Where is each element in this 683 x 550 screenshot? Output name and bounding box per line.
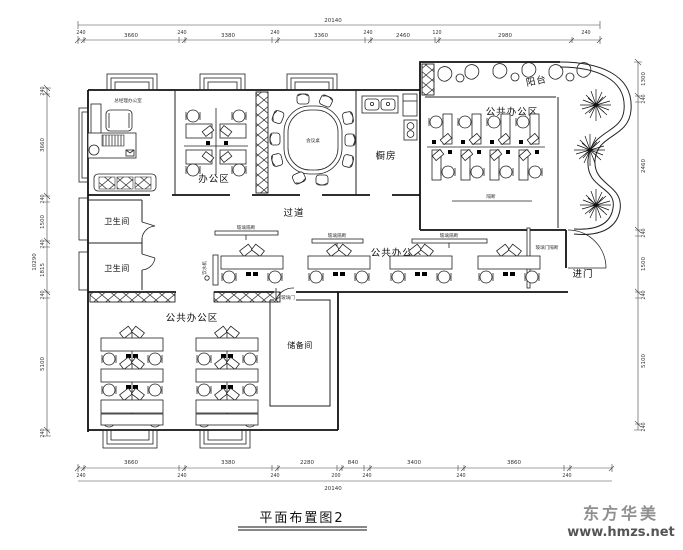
room-label-public-office-bottom: 公共办公区 bbox=[166, 312, 219, 324]
dim: 240 bbox=[270, 473, 279, 479]
dim: 240 bbox=[177, 473, 186, 479]
dim: 120 bbox=[432, 30, 441, 36]
room-label-balcony: 阳台 bbox=[525, 73, 548, 89]
stove bbox=[404, 120, 417, 140]
dim: 3660 bbox=[124, 460, 138, 466]
room-note-manager: 总经理办公室 bbox=[114, 97, 142, 104]
dim: 240 bbox=[641, 94, 647, 103]
dim: 240 bbox=[641, 290, 647, 299]
window-top-2 bbox=[200, 74, 245, 90]
room-label-kitchen: 橱房 bbox=[375, 150, 396, 162]
dimension-right: 1300 240 2460 240 1500 240 5100 240 bbox=[634, 59, 647, 432]
water-dispenser-note: 饮水机 bbox=[201, 261, 208, 275]
hatched-wall bbox=[90, 292, 175, 302]
dim: 240 bbox=[40, 239, 46, 248]
dim: 240 bbox=[40, 194, 46, 203]
dim: 2460 bbox=[396, 33, 410, 39]
manager-office: 总经理办公室 bbox=[88, 97, 156, 191]
room-label-bathroom-1: 卫生间 bbox=[104, 216, 130, 226]
floor-plan-drawing: 20140 240 3660 240 3380 240 3360 240 246… bbox=[0, 0, 683, 550]
dim: 240 bbox=[581, 30, 590, 36]
kitchen: 橱房 bbox=[362, 94, 417, 162]
room-label-storage: 储备间 bbox=[287, 340, 313, 350]
dim: 840 bbox=[348, 460, 359, 466]
watermark-brand: 东方华美 bbox=[583, 504, 659, 523]
corridor: 过道 卫生间 卫生间 公共办公区 玻璃隔断 玻璃隔断 玻璃隔断 饮水机 玻璃门隔… bbox=[104, 207, 593, 285]
floor-plan-page: 20140 240 3660 240 3380 240 3360 240 246… bbox=[0, 0, 683, 550]
dim: 2280 bbox=[300, 460, 314, 466]
dim: 3380 bbox=[221, 33, 235, 39]
workstation-cluster bbox=[221, 244, 283, 283]
storage-room: 储备间 玻璃门 bbox=[281, 294, 313, 350]
drawing-title: 平面布置图2 bbox=[238, 511, 367, 530]
dim-bottom-total: 20140 bbox=[324, 486, 342, 492]
window-left-2 bbox=[79, 198, 88, 240]
dim: 5100 bbox=[40, 357, 46, 371]
tree-icon bbox=[580, 89, 611, 121]
dimension-bottom: 3660 3380 2280 840 3400 3860 240 240 240… bbox=[75, 460, 614, 492]
shelf-note: 玻璃隔断 bbox=[328, 232, 347, 239]
water-dispenser bbox=[213, 255, 218, 285]
office-area: 办公区 bbox=[184, 108, 248, 185]
dim: 240 bbox=[641, 422, 647, 431]
dim: 240 bbox=[40, 86, 46, 95]
sink bbox=[362, 96, 398, 113]
dim: 240 bbox=[177, 30, 186, 36]
dim: 200 bbox=[331, 473, 340, 479]
window-bottom-1 bbox=[103, 430, 157, 448]
workstation-cluster bbox=[478, 244, 540, 283]
dim: 1300 bbox=[641, 72, 647, 86]
watermark: 东方华美 www.hmzs.net bbox=[567, 504, 674, 540]
dim-left-total: 10290 bbox=[32, 253, 38, 271]
sofa bbox=[94, 174, 156, 191]
dim: 3660 bbox=[40, 138, 46, 152]
storage-door-note: 玻璃门 bbox=[281, 294, 295, 301]
dim: 1500 bbox=[641, 257, 647, 271]
dim: 3400 bbox=[407, 460, 421, 466]
hatched-wall bbox=[422, 64, 434, 95]
dim: 240 bbox=[270, 30, 279, 36]
dimension-top: 20140 240 3660 240 3380 240 3360 240 246… bbox=[75, 18, 602, 44]
entrance-note: 玻璃门隔断 bbox=[536, 244, 559, 251]
room-note-conference: 会议桌 bbox=[306, 137, 320, 144]
dim: 240 bbox=[562, 473, 571, 479]
room-label-bathroom-2: 卫生间 bbox=[104, 263, 130, 273]
dim-top-total: 20140 bbox=[324, 18, 342, 24]
window-top-3 bbox=[287, 74, 337, 90]
watermark-site: www.hmzs.net bbox=[567, 525, 674, 540]
dim: 240 bbox=[40, 428, 46, 437]
window-left-1 bbox=[79, 108, 88, 182]
conference-room: 会议桌 bbox=[270, 94, 355, 185]
dim: 2460 bbox=[641, 159, 647, 173]
dim: 240 bbox=[40, 290, 46, 299]
dim: 3860 bbox=[507, 460, 521, 466]
dim: 3360 bbox=[314, 33, 328, 39]
armchair bbox=[106, 110, 132, 131]
window-bottom-2 bbox=[200, 430, 250, 448]
dim: 240 bbox=[641, 228, 647, 237]
public-office-bottom: 公共办公区 bbox=[101, 312, 258, 427]
room-label-corridor: 过道 bbox=[283, 207, 304, 219]
dim: 1500 bbox=[40, 215, 46, 229]
dim: 1815 bbox=[40, 263, 46, 277]
dim: 5100 bbox=[641, 354, 647, 368]
dim: 240 bbox=[362, 473, 371, 479]
hatched-wall bbox=[256, 92, 268, 193]
dim: 240 bbox=[456, 473, 465, 479]
dim: 3380 bbox=[221, 460, 235, 466]
room-label-entrance: 进门 bbox=[572, 268, 593, 280]
partition-note: 隔断 bbox=[486, 193, 496, 200]
dimension-left: 10290 240 3660 240 1500 240 1815 240 510… bbox=[32, 85, 51, 438]
tree-icon bbox=[574, 134, 605, 166]
fridge bbox=[403, 94, 417, 116]
dim: 240 bbox=[76, 30, 85, 36]
shelf-note: 玻璃隔断 bbox=[237, 224, 256, 231]
window-left-3 bbox=[79, 252, 88, 290]
tree-icon bbox=[580, 189, 611, 221]
public-office-top: 公共办公区 隔断 bbox=[427, 106, 545, 201]
workstation-cluster bbox=[308, 244, 370, 283]
window-top-1 bbox=[107, 74, 157, 90]
dim: 3660 bbox=[124, 33, 138, 39]
dim: 2980 bbox=[498, 33, 512, 39]
room-label-office: 办公区 bbox=[198, 173, 230, 185]
dim: 240 bbox=[363, 30, 372, 36]
shelf-note: 玻璃隔断 bbox=[440, 232, 459, 239]
dim: 240 bbox=[76, 473, 85, 479]
title-text: 平面布置图2 bbox=[259, 511, 344, 526]
